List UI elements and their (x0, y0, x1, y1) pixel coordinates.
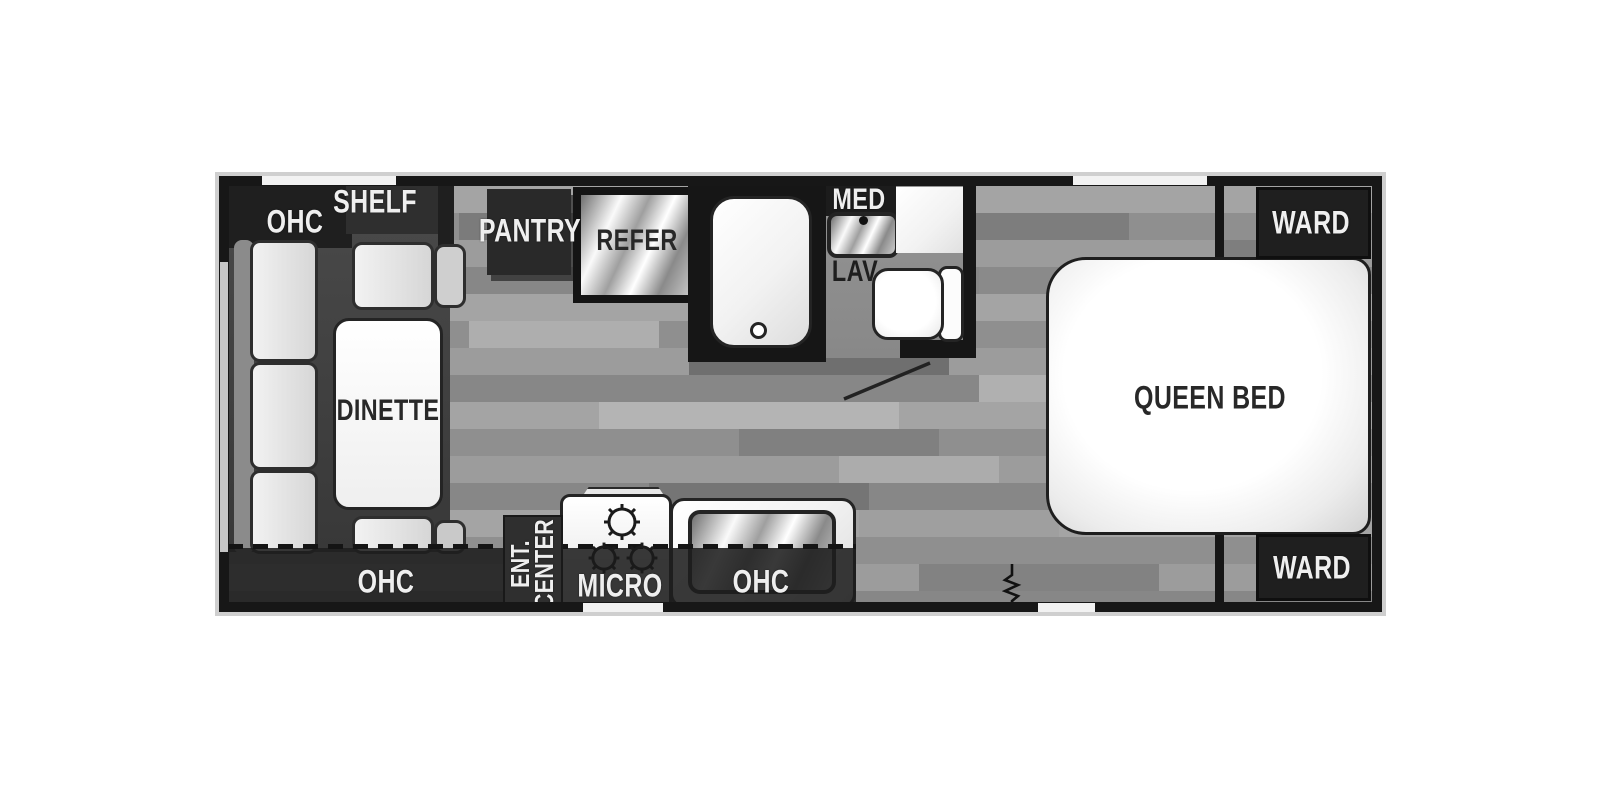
floor-plank (919, 564, 1159, 591)
label-pantry: PANTRY (479, 213, 581, 250)
floor-plank (739, 429, 939, 456)
label-ward-front: WARD (1272, 205, 1350, 242)
shelf-end-panel (438, 186, 454, 252)
label-lavatory: LAV (832, 255, 878, 289)
label-dinette: DINETTE (337, 394, 440, 428)
floor-plank (599, 402, 899, 429)
dinette-bench-cushion (352, 242, 434, 310)
trailer-floorplan: OHC SHELF PANTRY REFER MED LAV DINETTE O… (219, 176, 1382, 612)
window (220, 262, 228, 552)
window (1038, 603, 1095, 612)
dinette-bench-cushion (250, 362, 318, 470)
dinette-bench-end (434, 244, 466, 308)
label-ohc-front-top: OHC (267, 204, 324, 241)
label-ward-rear: WARD (1273, 550, 1351, 587)
bedroom-wall-stub-top (1215, 186, 1224, 262)
stove-burner-icon (601, 501, 643, 543)
floor-plank (859, 510, 1059, 537)
floorplan-image: { "title": "Travel trailer floor plan", … (0, 0, 1600, 800)
faucet-icon (859, 216, 868, 225)
label-ohc-kitchen: OHC (733, 564, 790, 601)
label-medicine-cabinet: MED (832, 183, 885, 217)
label-ohc-front-bottom: OHC (358, 564, 415, 601)
label-microwave: MICRO (577, 568, 662, 605)
dinette-bench-cushion (250, 470, 318, 554)
window (583, 603, 663, 612)
label-shelf: SHELF (333, 184, 417, 221)
bath-door-swing-icon (842, 361, 932, 401)
label-ent-center: ENT. CENTER (509, 519, 557, 609)
bedroom-wall-stub-bottom (1215, 535, 1224, 602)
window (262, 176, 396, 185)
floor-plank (469, 321, 659, 348)
dinette-bench-cushion (250, 240, 318, 362)
bathroom-bottom-wall (900, 340, 976, 358)
floor-plank (839, 456, 999, 483)
floor-plank (969, 213, 1129, 240)
label-refrigerator: REFER (596, 224, 677, 258)
tub-drain-icon (750, 322, 767, 339)
bathroom-right-wall (963, 186, 976, 358)
label-queen-bed: QUEEN BED (1134, 380, 1286, 417)
window (1073, 176, 1207, 185)
toilet-bowl (872, 268, 944, 340)
bath-counter (896, 187, 973, 253)
label-ent-line2: CENTER (533, 519, 557, 609)
entry-step-icon (1002, 564, 1022, 612)
